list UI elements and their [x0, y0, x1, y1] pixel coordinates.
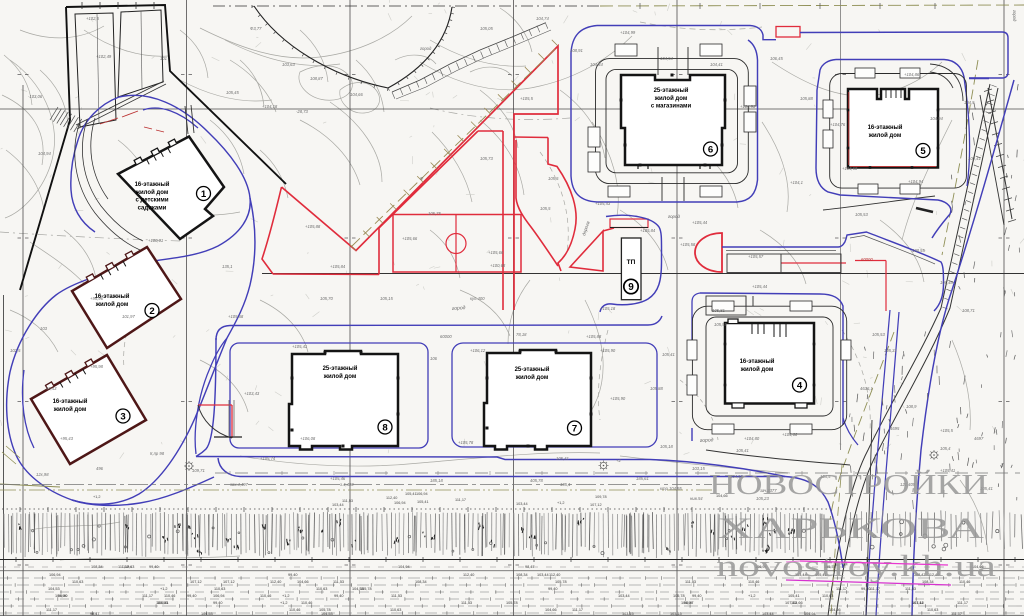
svg-text:111,17: 111,17: [869, 587, 880, 591]
svg-text:104,66: 104,66: [297, 580, 309, 584]
svg-text:жилой дом: жилой дом: [654, 95, 688, 102]
svg-text:108,55: 108,55: [912, 248, 925, 253]
svg-text:+1,2: +1,2: [557, 501, 565, 505]
svg-text:105,78: 105,78: [506, 601, 518, 605]
svg-text:+105,66: +105,66: [402, 236, 418, 241]
svg-text:111,53: 111,53: [342, 499, 353, 503]
svg-text:+105,84: +105,84: [640, 228, 656, 233]
svg-text:108,34: 108,34: [516, 573, 528, 577]
svg-text:+102,5: +102,5: [86, 16, 100, 21]
svg-text:496: 496: [96, 466, 104, 471]
svg-text:+1,2: +1,2: [280, 601, 288, 605]
svg-text:+104,80: +104,80: [744, 436, 760, 441]
svg-text:жилой дом: жилой дом: [868, 132, 902, 139]
svg-text:106,94: 106,94: [213, 594, 225, 598]
svg-text:+105,18: +105,18: [600, 306, 616, 311]
svg-text:7: 7: [572, 423, 577, 434]
svg-text:104,53: 104,53: [156, 601, 168, 605]
svg-text:+2: +2: [616, 458, 621, 463]
svg-text:105,41: 105,41: [662, 352, 675, 357]
svg-text:+102,49: +102,49: [96, 54, 112, 59]
svg-text:+1,2: +1,2: [93, 495, 101, 499]
svg-text:16-этажный: 16-этажный: [53, 398, 88, 405]
svg-text:105,41: 105,41: [788, 594, 800, 598]
svg-text:105,31: 105,31: [884, 348, 897, 353]
svg-text:103,15: 103,15: [670, 612, 682, 616]
svg-text:104,74: 104,74: [536, 16, 549, 21]
svg-text:111,17: 111,17: [957, 601, 968, 605]
svg-text:105,88: 105,88: [800, 96, 813, 101]
svg-text:город: город: [420, 46, 432, 51]
svg-text:жилой дом: жилой дом: [515, 374, 549, 381]
svg-text:+105,90: +105,90: [600, 348, 616, 353]
svg-text:жилой дом: жилой дом: [740, 366, 774, 373]
svg-text:110,46: 110,46: [260, 594, 271, 598]
svg-text:103,44: 103,44: [618, 594, 630, 598]
svg-text:105,41: 105,41: [556, 456, 569, 461]
svg-text:78,18: 78,18: [516, 332, 527, 337]
svg-text:+95,96: +95,96: [90, 296, 104, 301]
svg-text:зах.4,497: зах.4,497: [229, 482, 249, 487]
svg-text:112,40: 112,40: [549, 573, 560, 577]
svg-text:104,94: 104,94: [681, 601, 693, 605]
svg-text:108,91: 108,91: [570, 48, 583, 53]
svg-text:+1,2: +1,2: [282, 594, 290, 598]
svg-text:111,53: 111,53: [905, 587, 916, 591]
svg-text:104,53: 104,53: [48, 587, 60, 591]
svg-text:111,53: 111,53: [391, 594, 402, 598]
svg-text:107,12: 107,12: [912, 601, 924, 605]
svg-text:3: 3: [120, 411, 125, 422]
svg-text:105,78: 105,78: [555, 580, 567, 584]
svg-text:105,70: 105,70: [320, 296, 333, 301]
svg-text:2: 2: [149, 306, 154, 317]
svg-text:16-этажный: 16-этажный: [740, 358, 775, 365]
svg-text:112,40: 112,40: [386, 496, 397, 500]
svg-text:105,88: 105,88: [650, 386, 663, 391]
svg-text:104,94: 104,94: [930, 116, 943, 121]
svg-text:111,17: 111,17: [572, 608, 583, 612]
svg-text:107,12: 107,12: [785, 601, 797, 605]
svg-text:кул.400: кул.400: [470, 296, 485, 301]
svg-text:novostroy.kh.ua: novostroy.kh.ua: [716, 548, 996, 583]
svg-text:+100,01: +100,01: [148, 238, 163, 243]
svg-text:104,94: 104,94: [55, 594, 67, 598]
svg-text:105,45: 105,45: [226, 90, 239, 95]
svg-text:12х,98: 12х,98: [36, 472, 49, 477]
svg-text:ктр 104,55: ктр 104,55: [660, 486, 682, 491]
svg-text:108,34: 108,34: [415, 580, 427, 584]
svg-text:жилой дом: жилой дом: [53, 406, 87, 413]
svg-text:+105,58: +105,58: [228, 314, 244, 319]
svg-text:104,53: 104,53: [201, 612, 213, 616]
svg-text:+105,84: +105,84: [330, 264, 346, 269]
svg-text:112,40: 112,40: [463, 573, 474, 577]
svg-text:104,94: 104,94: [804, 612, 816, 616]
svg-text:105,55: 105,55: [714, 322, 727, 327]
svg-text:111,53: 111,53: [685, 580, 696, 584]
svg-text:108,87: 108,87: [310, 76, 323, 81]
svg-text:+103,43: +103,43: [244, 391, 260, 396]
svg-text:104,54: 104,54: [660, 56, 673, 61]
svg-text:16-этажный: 16-этажный: [135, 181, 170, 188]
svg-text:город: город: [1012, 10, 1017, 22]
svg-text:+104,94: +104,94: [908, 179, 924, 184]
svg-text:108,34: 108,34: [91, 565, 103, 569]
svg-text:с магазинами: с магазинами: [651, 104, 692, 110]
svg-text:4636,1: 4636,1: [860, 386, 873, 391]
svg-text:103,44: 103,44: [332, 503, 344, 507]
svg-text:99,40: 99,40: [149, 565, 159, 569]
svg-text:405,78: 405,78: [530, 478, 543, 483]
svg-text:105,41: 105,41: [736, 448, 749, 453]
svg-text:+1,2: +1,2: [160, 587, 168, 591]
svg-text:нив.54: нив.54: [690, 496, 703, 501]
svg-text:103,44: 103,44: [762, 612, 774, 616]
svg-text:111,17: 111,17: [455, 498, 466, 502]
svg-text:103: 103: [40, 326, 48, 331]
svg-text:108,71: 108,71: [962, 308, 975, 313]
svg-text:104,66: 104,66: [545, 608, 557, 612]
svg-text:+104,99: +104,99: [620, 30, 636, 35]
svg-text:106,94: 106,94: [49, 573, 61, 577]
svg-text:город: город: [452, 305, 466, 312]
svg-text:106,45: 106,45: [770, 56, 783, 61]
svg-text:110,46: 110,46: [289, 608, 300, 612]
svg-text:+105,43: +105,43: [595, 201, 611, 206]
svg-text:16-этажный: 16-этажный: [868, 124, 903, 131]
svg-text:60000: 60000: [861, 257, 873, 262]
svg-text:104,53: 104,53: [321, 612, 333, 616]
svg-text:105,75: 105,75: [428, 211, 441, 216]
svg-text:110,46: 110,46: [164, 594, 175, 598]
svg-text:+105,66: +105,66: [488, 250, 504, 255]
svg-text:102,5: 102,5: [10, 348, 21, 353]
svg-text:с детскими: с детскими: [135, 198, 168, 204]
svg-text:жилой дом: жилой дом: [323, 373, 357, 380]
svg-text:103,15: 103,15: [692, 466, 705, 471]
svg-text:99,40: 99,40: [548, 587, 558, 591]
svg-text:110,63: 110,63: [822, 594, 833, 598]
svg-text:99,40: 99,40: [692, 594, 702, 598]
svg-text:105,73: 105,73: [480, 156, 493, 161]
svg-text:+105,88: +105,88: [305, 224, 321, 229]
svg-text:103,63: 103,63: [282, 62, 295, 67]
svg-text:107,12: 107,12: [590, 503, 602, 507]
svg-text:106: 106: [430, 356, 438, 361]
svg-text:99,40: 99,40: [187, 594, 197, 598]
svg-text:+105,5: +105,5: [520, 96, 534, 101]
svg-text:-103,06: -103,06: [28, 94, 43, 99]
svg-text:НОВОСТРОЙКИ: НОВОСТРОЙКИ: [709, 469, 988, 501]
svg-text:100,41: 100,41: [968, 156, 981, 161]
svg-text:4695: 4695: [890, 426, 900, 431]
svg-text:105,18: 105,18: [660, 444, 673, 449]
svg-text:+106,08: +106,08: [300, 436, 316, 441]
svg-text:108,9: 108,9: [906, 404, 917, 409]
svg-text:105,81: 105,81: [712, 308, 725, 313]
svg-text:110,63: 110,63: [72, 580, 83, 584]
svg-text:105,05: 105,05: [480, 26, 493, 31]
svg-text:+104,66: +104,66: [782, 432, 798, 437]
svg-text:135,1: 135,1: [222, 264, 232, 269]
svg-text:жилой дом: жилой дом: [135, 189, 169, 196]
svg-text:+105,88: +105,88: [586, 334, 602, 339]
svg-text:95,43: 95,43: [46, 386, 57, 391]
svg-text:104,94: 104,94: [398, 565, 410, 569]
svg-text:106,48: 106,48: [940, 280, 953, 285]
svg-text:99,40: 99,40: [334, 594, 344, 598]
svg-text:104,41: 104,41: [710, 62, 723, 67]
svg-text:104,94: 104,94: [38, 151, 51, 156]
svg-text:110,63: 110,63: [316, 587, 327, 591]
svg-text:+106,12: +106,12: [470, 348, 486, 353]
svg-text:103,15: 103,15: [622, 612, 634, 616]
svg-text:111,17: 111,17: [46, 608, 57, 612]
svg-text:101,97: 101,97: [122, 314, 135, 319]
svg-text:104,5: 104,5: [964, 100, 975, 105]
svg-text:103,44: 103,44: [537, 573, 549, 577]
svg-text:+105,41: +105,41: [292, 344, 307, 349]
svg-text:-28,73: -28,73: [296, 109, 309, 114]
svg-text:з.4,490: з.4,490: [339, 482, 354, 487]
svg-text:+105,58: +105,58: [680, 242, 696, 247]
svg-text:+104,68: +104,68: [842, 166, 858, 171]
svg-text:104,84: 104,84: [590, 62, 603, 67]
svg-text:Ф3,77: Ф3,77: [250, 26, 262, 31]
svg-text:109,78: 109,78: [595, 495, 607, 499]
svg-text:105,4: 105,4: [940, 446, 951, 451]
svg-text:105,78: 105,78: [673, 594, 685, 598]
svg-text:99,40: 99,40: [213, 601, 223, 605]
svg-text:+105,74: +105,74: [260, 456, 276, 461]
svg-text:185,61: 185,61: [636, 476, 649, 481]
svg-text:103,44: 103,44: [516, 502, 528, 506]
svg-text:+104,91: +104,91: [740, 104, 755, 109]
svg-text:99,40: 99,40: [288, 573, 298, 577]
svg-text:111,53: 111,53: [333, 580, 344, 584]
svg-text:104,66: 104,66: [829, 608, 841, 612]
svg-text:9: 9: [628, 282, 634, 293]
svg-text:105,78: 105,78: [360, 587, 372, 591]
svg-text:107,12: 107,12: [190, 580, 202, 584]
svg-text:+1,2: +1,2: [748, 594, 756, 598]
svg-text:25-этажный: 25-этажный: [654, 87, 689, 94]
svg-text:105,5: 105,5: [540, 206, 551, 211]
svg-text:город: город: [700, 437, 714, 444]
svg-text:111,17: 111,17: [118, 565, 129, 569]
svg-text:110,63: 110,63: [927, 608, 938, 612]
svg-text:107,12: 107,12: [223, 580, 235, 584]
svg-text:185,18: 185,18: [430, 478, 443, 483]
svg-text:5: 5: [920, 146, 926, 157]
svg-text:+105,46: +105,46: [330, 476, 346, 481]
svg-text:8: 8: [382, 422, 388, 433]
svg-text:+95,43: +95,43: [60, 436, 74, 441]
svg-text:+105,5: +105,5: [940, 428, 954, 433]
svg-text:ТП: ТП: [627, 259, 636, 266]
svg-text:105,5: 105,5: [548, 176, 559, 181]
svg-text:109,71: 109,71: [192, 468, 205, 473]
svg-text:6: 6: [708, 144, 713, 155]
svg-text:+104,86: +104,86: [904, 72, 920, 77]
svg-text:105,41: 105,41: [405, 492, 417, 496]
svg-text:111,17: 111,17: [836, 587, 847, 591]
svg-text:105,53: 105,53: [855, 212, 868, 217]
svg-text:105,53: 105,53: [872, 332, 885, 337]
svg-text:садиками: садиками: [138, 205, 167, 211]
svg-text:К,пр 98: К,пр 98: [150, 451, 165, 456]
svg-text:98,47: 98,47: [90, 612, 100, 616]
svg-text:+105,44: +105,44: [752, 284, 768, 289]
svg-text:111,53: 111,53: [461, 601, 472, 605]
svg-text:+104,76: +104,76: [830, 122, 846, 127]
svg-text:+105,57: +105,57: [748, 254, 764, 259]
svg-text:25-этажный: 25-этажный: [323, 365, 358, 372]
svg-text:+104,1: +104,1: [790, 180, 803, 185]
svg-text:+100,68: +100,68: [490, 263, 506, 268]
svg-text:4: 4: [797, 380, 803, 391]
svg-text:112,40: 112,40: [270, 580, 281, 584]
svg-text:111,17: 111,17: [951, 612, 962, 616]
svg-text:ХАРЬКОВА: ХАРЬКОВА: [717, 513, 985, 545]
svg-text:+105,78: +105,78: [458, 440, 474, 445]
svg-text:1: 1: [201, 189, 207, 200]
svg-text:105,1: 105,1: [560, 482, 570, 487]
svg-text:110,46: 110,46: [301, 601, 312, 605]
svg-text:111,17: 111,17: [142, 594, 153, 598]
svg-text:106,94: 106,94: [394, 501, 406, 505]
svg-text:110,63: 110,63: [214, 587, 225, 591]
svg-text:жилой дом: жилой дом: [95, 301, 129, 308]
svg-text:101: 101: [160, 56, 167, 61]
svg-text:105,15: 105,15: [380, 296, 393, 301]
svg-text:98,47: 98,47: [525, 565, 535, 569]
svg-text:4697: 4697: [974, 436, 984, 441]
svg-text:106,94: 106,94: [416, 492, 428, 496]
svg-text:+104,18: +104,18: [262, 104, 278, 109]
svg-text:город: город: [668, 214, 680, 219]
svg-text:104,66: 104,66: [350, 92, 363, 97]
svg-text:+95,98: +95,98: [90, 364, 104, 369]
svg-text:110,63: 110,63: [390, 608, 401, 612]
svg-text:105,41: 105,41: [417, 500, 429, 504]
svg-text:+105,44: +105,44: [692, 220, 708, 225]
svg-text:25-этажный: 25-этажный: [515, 366, 550, 373]
svg-text:+105,90: +105,90: [610, 396, 626, 401]
svg-text:60000: 60000: [440, 334, 452, 339]
